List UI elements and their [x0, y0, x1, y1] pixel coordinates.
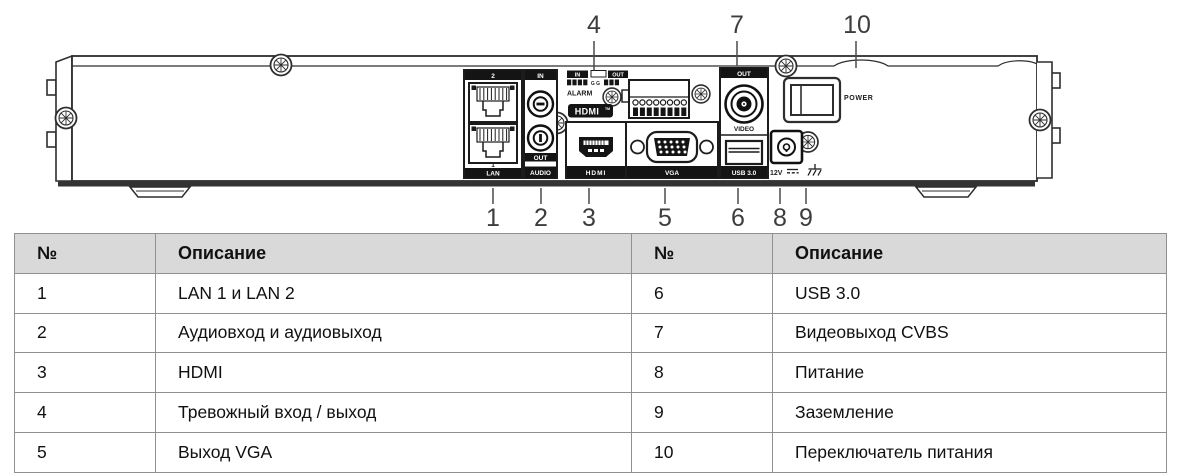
header-description-right: Описание	[773, 234, 1167, 274]
callout-4: 4	[587, 11, 601, 39]
audio-in-label: IN	[537, 73, 544, 80]
cell-description: USB 3.0	[773, 273, 1167, 313]
cell-number: 7	[632, 313, 773, 353]
header-number-right: №	[632, 234, 773, 274]
chassis-bottom-bar	[58, 181, 1035, 187]
video-label: VIDEO	[734, 126, 754, 133]
rj45-port-2	[469, 83, 517, 122]
chassis-tab	[47, 80, 56, 95]
cell-number: 10	[632, 432, 773, 472]
rca-jack-in	[528, 92, 553, 117]
screw-icon	[692, 85, 710, 103]
callout-3: 3	[582, 204, 596, 232]
callout-1: 1	[486, 204, 500, 232]
audio-out-label: OUT	[534, 155, 548, 162]
rj45-port-1	[469, 124, 517, 163]
hdmi-logo-text: HDMI	[575, 107, 600, 117]
bnc-connector	[726, 86, 763, 123]
usb-port	[726, 141, 762, 164]
audio-block: IN OUT AUDIO	[524, 70, 557, 178]
callout-8: 8	[773, 204, 787, 232]
cell-number: 1	[15, 273, 156, 313]
screw-icon	[603, 88, 621, 106]
cell-description: Переключатель питания	[773, 432, 1167, 472]
alarm-jumper	[591, 71, 606, 78]
screw-icon	[1030, 110, 1051, 131]
cell-number: 5	[15, 432, 156, 472]
callout-7: 7	[730, 11, 744, 39]
callout-5: 5	[658, 204, 672, 232]
legend-table: № Описание № Описание 1 LAN 1 и LAN 2 6 …	[14, 233, 1167, 473]
manual-page: 2 1 LAN IN	[0, 0, 1181, 476]
cell-description: Видеовыход CVBS	[773, 313, 1167, 353]
hdmi-label: HDMI	[586, 170, 607, 177]
audio-label: AUDIO	[530, 170, 551, 177]
cell-number: 6	[632, 273, 773, 313]
power-switch	[784, 78, 840, 122]
table-row: 3 HDMI 8 Питание	[15, 353, 1167, 393]
rear-panel-diagram: 2 1 LAN IN	[0, 0, 1181, 232]
dc-voltage-label: 12V	[770, 170, 783, 177]
lan-port2-label: 2	[491, 73, 495, 80]
screw-icon	[56, 108, 77, 129]
cell-number: 2	[15, 313, 156, 353]
hdmi-tm-label: TM	[605, 107, 610, 111]
cell-description: Аудиовход и аудиовыход	[156, 313, 632, 353]
alarm-terminal-block	[622, 80, 689, 118]
dc-jack	[771, 131, 802, 163]
cell-number: 9	[632, 393, 773, 433]
legend-header-row: № Описание № Описание	[15, 234, 1167, 274]
chassis-foot	[916, 187, 976, 197]
hdmi-port-block: HDMI	[566, 122, 626, 178]
cell-number: 4	[15, 393, 156, 433]
callout-6: 6	[731, 204, 745, 232]
cell-description: LAN 1 и LAN 2	[156, 273, 632, 313]
chassis-tab	[47, 132, 56, 147]
power-label: POWER	[844, 95, 873, 102]
rca-jack-out	[528, 126, 553, 151]
vga-screw-hole	[700, 141, 713, 154]
cell-description: Тревожный вход / выход	[156, 393, 632, 433]
alarm-out-label: OUT	[612, 73, 624, 79]
vga-connector	[647, 132, 697, 162]
header-description-left: Описание	[156, 234, 632, 274]
callout-2: 2	[534, 204, 548, 232]
cell-description: Заземление	[773, 393, 1167, 433]
hdmi-connector	[579, 137, 613, 157]
alarm-gg-label: G G	[591, 81, 600, 87]
table-row: 2 Аудиовход и аудиовыход 7 Видеовыход CV…	[15, 313, 1167, 353]
video-out-label: OUT	[737, 71, 751, 78]
hdmi-logo: HDMI TM	[568, 104, 613, 118]
vga-port-block: VGA	[626, 122, 718, 178]
vga-label: VGA	[665, 170, 679, 177]
table-row: 1 LAN 1 и LAN 2 6 USB 3.0	[15, 273, 1167, 313]
callout-9: 9	[799, 204, 813, 232]
cell-number: 8	[632, 353, 773, 393]
table-row: 5 Выход VGA 10 Переключатель питания	[15, 432, 1167, 472]
screw-icon	[271, 55, 292, 76]
lan-port1-label: 1	[491, 162, 495, 169]
lan-port-block: 2 1 LAN	[464, 70, 522, 178]
cell-number: 3	[15, 353, 156, 393]
callout-10: 10	[843, 11, 871, 39]
header-number-left: №	[15, 234, 156, 274]
screw-icon	[776, 56, 797, 77]
alarm-label: ALARM	[567, 91, 592, 98]
cell-description: Выход VGA	[156, 432, 632, 472]
vga-screw-hole	[631, 141, 644, 154]
chassis-foot	[130, 187, 190, 197]
rear-panel-svg: 2 1 LAN IN	[0, 0, 1181, 232]
cell-description: HDMI	[156, 353, 632, 393]
usb-label: USB 3.0	[732, 170, 757, 177]
alarm-in-label: IN	[575, 73, 581, 79]
lan-label: LAN	[486, 171, 500, 178]
cell-description: Питание	[773, 353, 1167, 393]
video-usb-block: OUT VIDEO USB 3.0	[720, 68, 768, 178]
table-row: 4 Тревожный вход / выход 9 Заземление	[15, 393, 1167, 433]
